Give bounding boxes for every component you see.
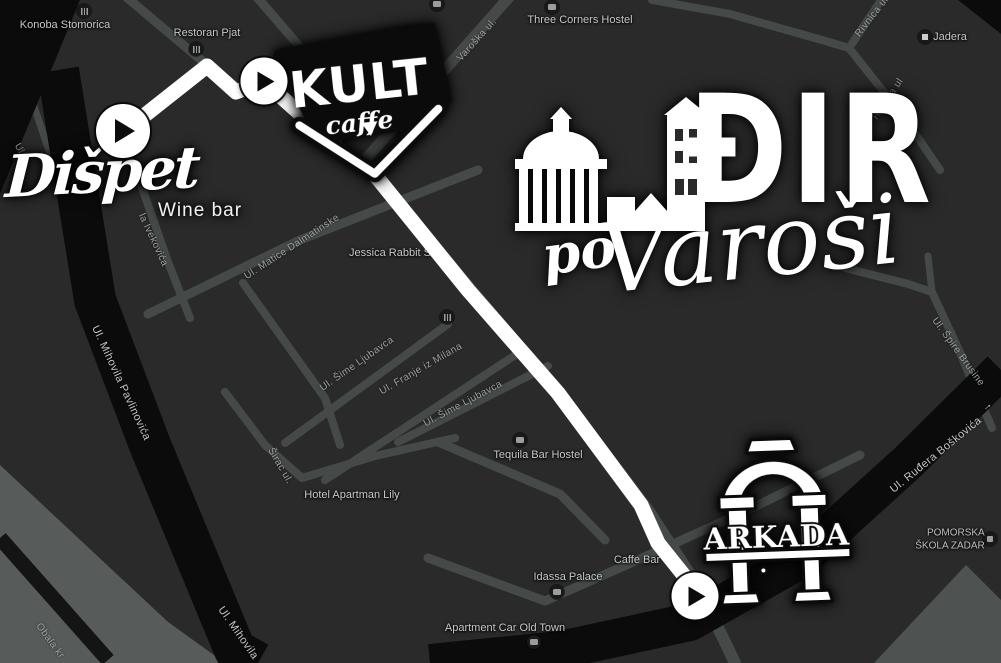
play-icon: [115, 119, 135, 143]
dispet-logo-descriptor: Wine bar: [158, 200, 242, 222]
kult-logo: KULT caffe: [270, 21, 468, 197]
poi-label-caffe-bar[interactable]: Caffe Bar: [614, 554, 660, 566]
poi-label-line-1: POMORSKA: [915, 528, 984, 541]
poi-label-apartment-car-old-town[interactable]: Apartment Car Old Town: [445, 622, 565, 634]
bed-glyph: [516, 437, 524, 443]
arkada-logo: ARKADA: [699, 434, 855, 624]
bed-glyph: [433, 1, 441, 7]
poi-label-line-2: ŠKOLA ZADAR: [915, 540, 984, 553]
road-grid-cross: [243, 283, 340, 445]
kult-logo-descriptor: caffe: [324, 105, 395, 141]
poi-label-hotel-apartman-lily[interactable]: Hotel Apartman Lily: [304, 489, 399, 501]
bed-glyph: [530, 639, 538, 645]
fork-knife-glyph: [444, 314, 451, 321]
dir-po-varosi-logo: ĐIR po Varoši: [515, 85, 935, 325]
fork-knife-glyph: [81, 8, 88, 15]
school-icon[interactable]: [983, 532, 997, 546]
place-icon[interactable]: [918, 30, 932, 44]
lodging-icon[interactable]: [545, 0, 559, 14]
play-icon: [258, 71, 275, 91]
poi-label-three-corners-hostel[interactable]: Three Corners Hostel: [527, 14, 632, 26]
lodging-icon[interactable]: [527, 635, 541, 649]
route-marker-play-arkada[interactable]: [672, 573, 719, 620]
arkada-logo-name: ARKADA: [702, 517, 850, 557]
poi-label-pomorska-skola[interactable]: POMORSKA ŠKOLA ZADAR: [915, 528, 984, 553]
poi-label-idassa-palace[interactable]: Idassa Palace: [533, 571, 602, 583]
school-glyph: [987, 536, 993, 542]
dir-logo-subtitle: Varoši: [594, 173, 905, 316]
lodging-icon[interactable]: [513, 433, 527, 447]
block-area: [874, 565, 1001, 663]
play-icon: [689, 586, 706, 606]
route-marker-play-kult[interactable]: [241, 58, 288, 105]
block-dark-top-right: [958, 0, 1001, 34]
square-glyph: [922, 34, 928, 40]
poi-label-jessica-rabbit[interactable]: Jessica Rabbit S: [349, 247, 431, 259]
dispet-logo: Dišpet Wine bar: [2, 146, 252, 246]
poi-label-tequila-bar-hostel[interactable]: Tequila Bar Hostel: [493, 449, 582, 461]
road-rivnica-main: [652, 0, 849, 48]
restaurant-icon[interactable]: [77, 4, 91, 18]
fork-knife-glyph: [193, 46, 200, 53]
route-marker-play-dispet[interactable]: [96, 104, 150, 158]
poi-label-jadera[interactable]: Jadera: [933, 31, 967, 43]
lodging-icon[interactable]: [550, 585, 564, 599]
poi-label-konoba-stomorica[interactable]: Konoba Stomorica: [20, 19, 111, 31]
restaurant-icon[interactable]: [440, 310, 454, 324]
bed-glyph: [553, 589, 561, 595]
bed-glyph: [548, 4, 556, 10]
poi-label-restoran-pjat[interactable]: Restoran Pjat: [174, 27, 241, 39]
restaurant-icon[interactable]: [189, 42, 203, 56]
map-canvas[interactable]: Varoška ul. Rivnica ul Rivnica ul Ul. Ma…: [0, 0, 1001, 663]
